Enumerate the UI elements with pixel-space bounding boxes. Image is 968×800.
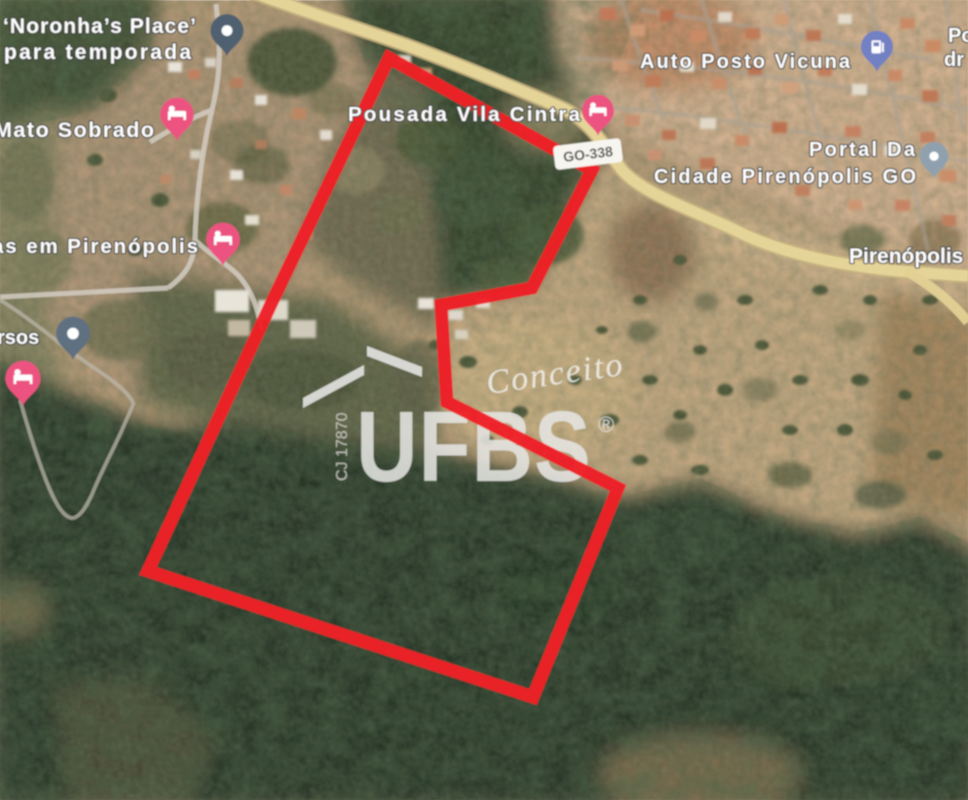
svg-text:Auto Posto Vicuna: Auto Posto Vicuna xyxy=(640,51,851,73)
svg-text:Portal Da: Portal Da xyxy=(809,139,916,161)
svg-text:Cidade Pirenópolis GO: Cidade Pirenópolis GO xyxy=(654,166,916,188)
svg-text:Mato Sobrado: Mato Sobrado xyxy=(0,118,154,142)
svg-text:®: ® xyxy=(598,412,614,437)
svg-text:‘Noronha’s Place’: ‘Noronha’s Place’ xyxy=(3,15,196,38)
svg-text:rsos: rsos xyxy=(0,327,39,349)
svg-text:CJ 17870: CJ 17870 xyxy=(334,412,351,481)
svg-text:Pousada Vila Cintra: Pousada Vila Cintra xyxy=(348,103,581,126)
svg-text:dr: dr xyxy=(944,49,964,71)
svg-text:UFBS: UFBS xyxy=(356,390,591,502)
svg-text:Pirenópolis: Pirenópolis xyxy=(849,245,963,268)
svg-text:Po: Po xyxy=(948,25,968,47)
